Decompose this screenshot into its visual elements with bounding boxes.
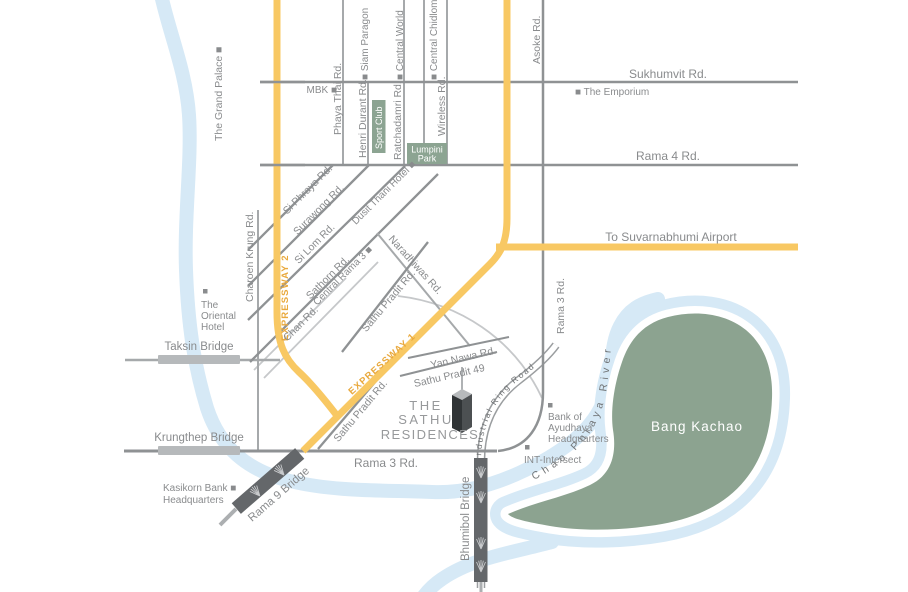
rama4-label: Rama 4 Rd.: [636, 149, 700, 163]
henri-durant-label: Henri Durant Rd.: [357, 79, 369, 158]
dusit-thani-label: Dusit Thani Hotel ■: [350, 159, 418, 227]
logo-line-residences: RESIDENCES: [381, 427, 480, 442]
wireless-label: Wireless Rd.: [436, 76, 448, 136]
bhumibol-bridge-label: Bhumibol Bridge: [460, 477, 472, 561]
int-intersect-label: INT-Intersect: [524, 455, 581, 466]
sport-club-label: Sport Club: [374, 106, 384, 149]
sathu-residences-location-map: Chao Phraya River Bang Kachao Industrial…: [0, 0, 908, 592]
sathu-pradit-upper-label: Sathu Pradit Rd.: [359, 268, 418, 335]
krungthep-bridge-label: Krungthep Bridge: [154, 432, 244, 444]
rama9-bridge-approach: [220, 509, 236, 525]
asoke-label: Asoke Rd.: [531, 16, 543, 64]
taksin-bridge-deck: [158, 355, 240, 364]
oriental-hotel-marker: [203, 289, 208, 294]
krungthep-bridge-deck: [158, 446, 240, 455]
bank-ayudhaya-label-line1: Bank of: [548, 412, 582, 423]
bang-kachao-label: Bang Kachao: [651, 419, 743, 434]
siam-paragon-label: ■ Siam Paragon: [360, 8, 371, 80]
logo-line-sathu: SATHU: [398, 412, 454, 427]
ratchadamri-label: Ratchadamri Rd.: [392, 81, 404, 160]
grand-palace-label: The Grand Palace ■: [213, 47, 225, 141]
kasikorn-label-line2: Headquarters: [163, 495, 224, 506]
oriental-hotel-label-line1: The: [201, 300, 219, 311]
sukhumvit-label: Sukhumvit Rd.: [629, 67, 707, 81]
emporium-label: ■ The Emporium: [575, 87, 649, 98]
charoen-krung-label: Charoen Krung Rd.: [244, 212, 256, 302]
lumpini-park-label-line2: Park: [418, 154, 437, 164]
airport-label: To Suvarnabhumi Airport: [605, 230, 737, 244]
bank-ayudhaya-marker: [548, 403, 553, 408]
bank-ayudhaya-label-line2: Ayudhaya: [548, 423, 593, 434]
central-chidlom-label: ■ Central Chidlom: [429, 0, 440, 80]
map-canvas: Chao Phraya River Bang Kachao Industrial…: [0, 0, 908, 592]
rama3-vertical-label: Rama 3 Rd.: [555, 278, 567, 334]
rama3-horizontal-label: Rama 3 Rd.: [354, 456, 418, 470]
central-world-label: ■ Central World: [395, 10, 406, 80]
oriental-hotel-label-line2: Oriental: [201, 311, 236, 322]
phaya-thai-label: Phaya Thai Rd.: [332, 63, 344, 135]
bank-ayudhaya-label-line3: Headquarters: [548, 434, 609, 445]
taksin-bridge-label: Taksin Bridge: [164, 341, 233, 353]
int-intersect-marker: [525, 445, 530, 450]
oriental-hotel-label-line3: Hotel: [201, 322, 224, 333]
logo-line-the: THE: [409, 398, 443, 413]
kasikorn-label-line1: Kasikorn Bank ■: [163, 483, 236, 494]
